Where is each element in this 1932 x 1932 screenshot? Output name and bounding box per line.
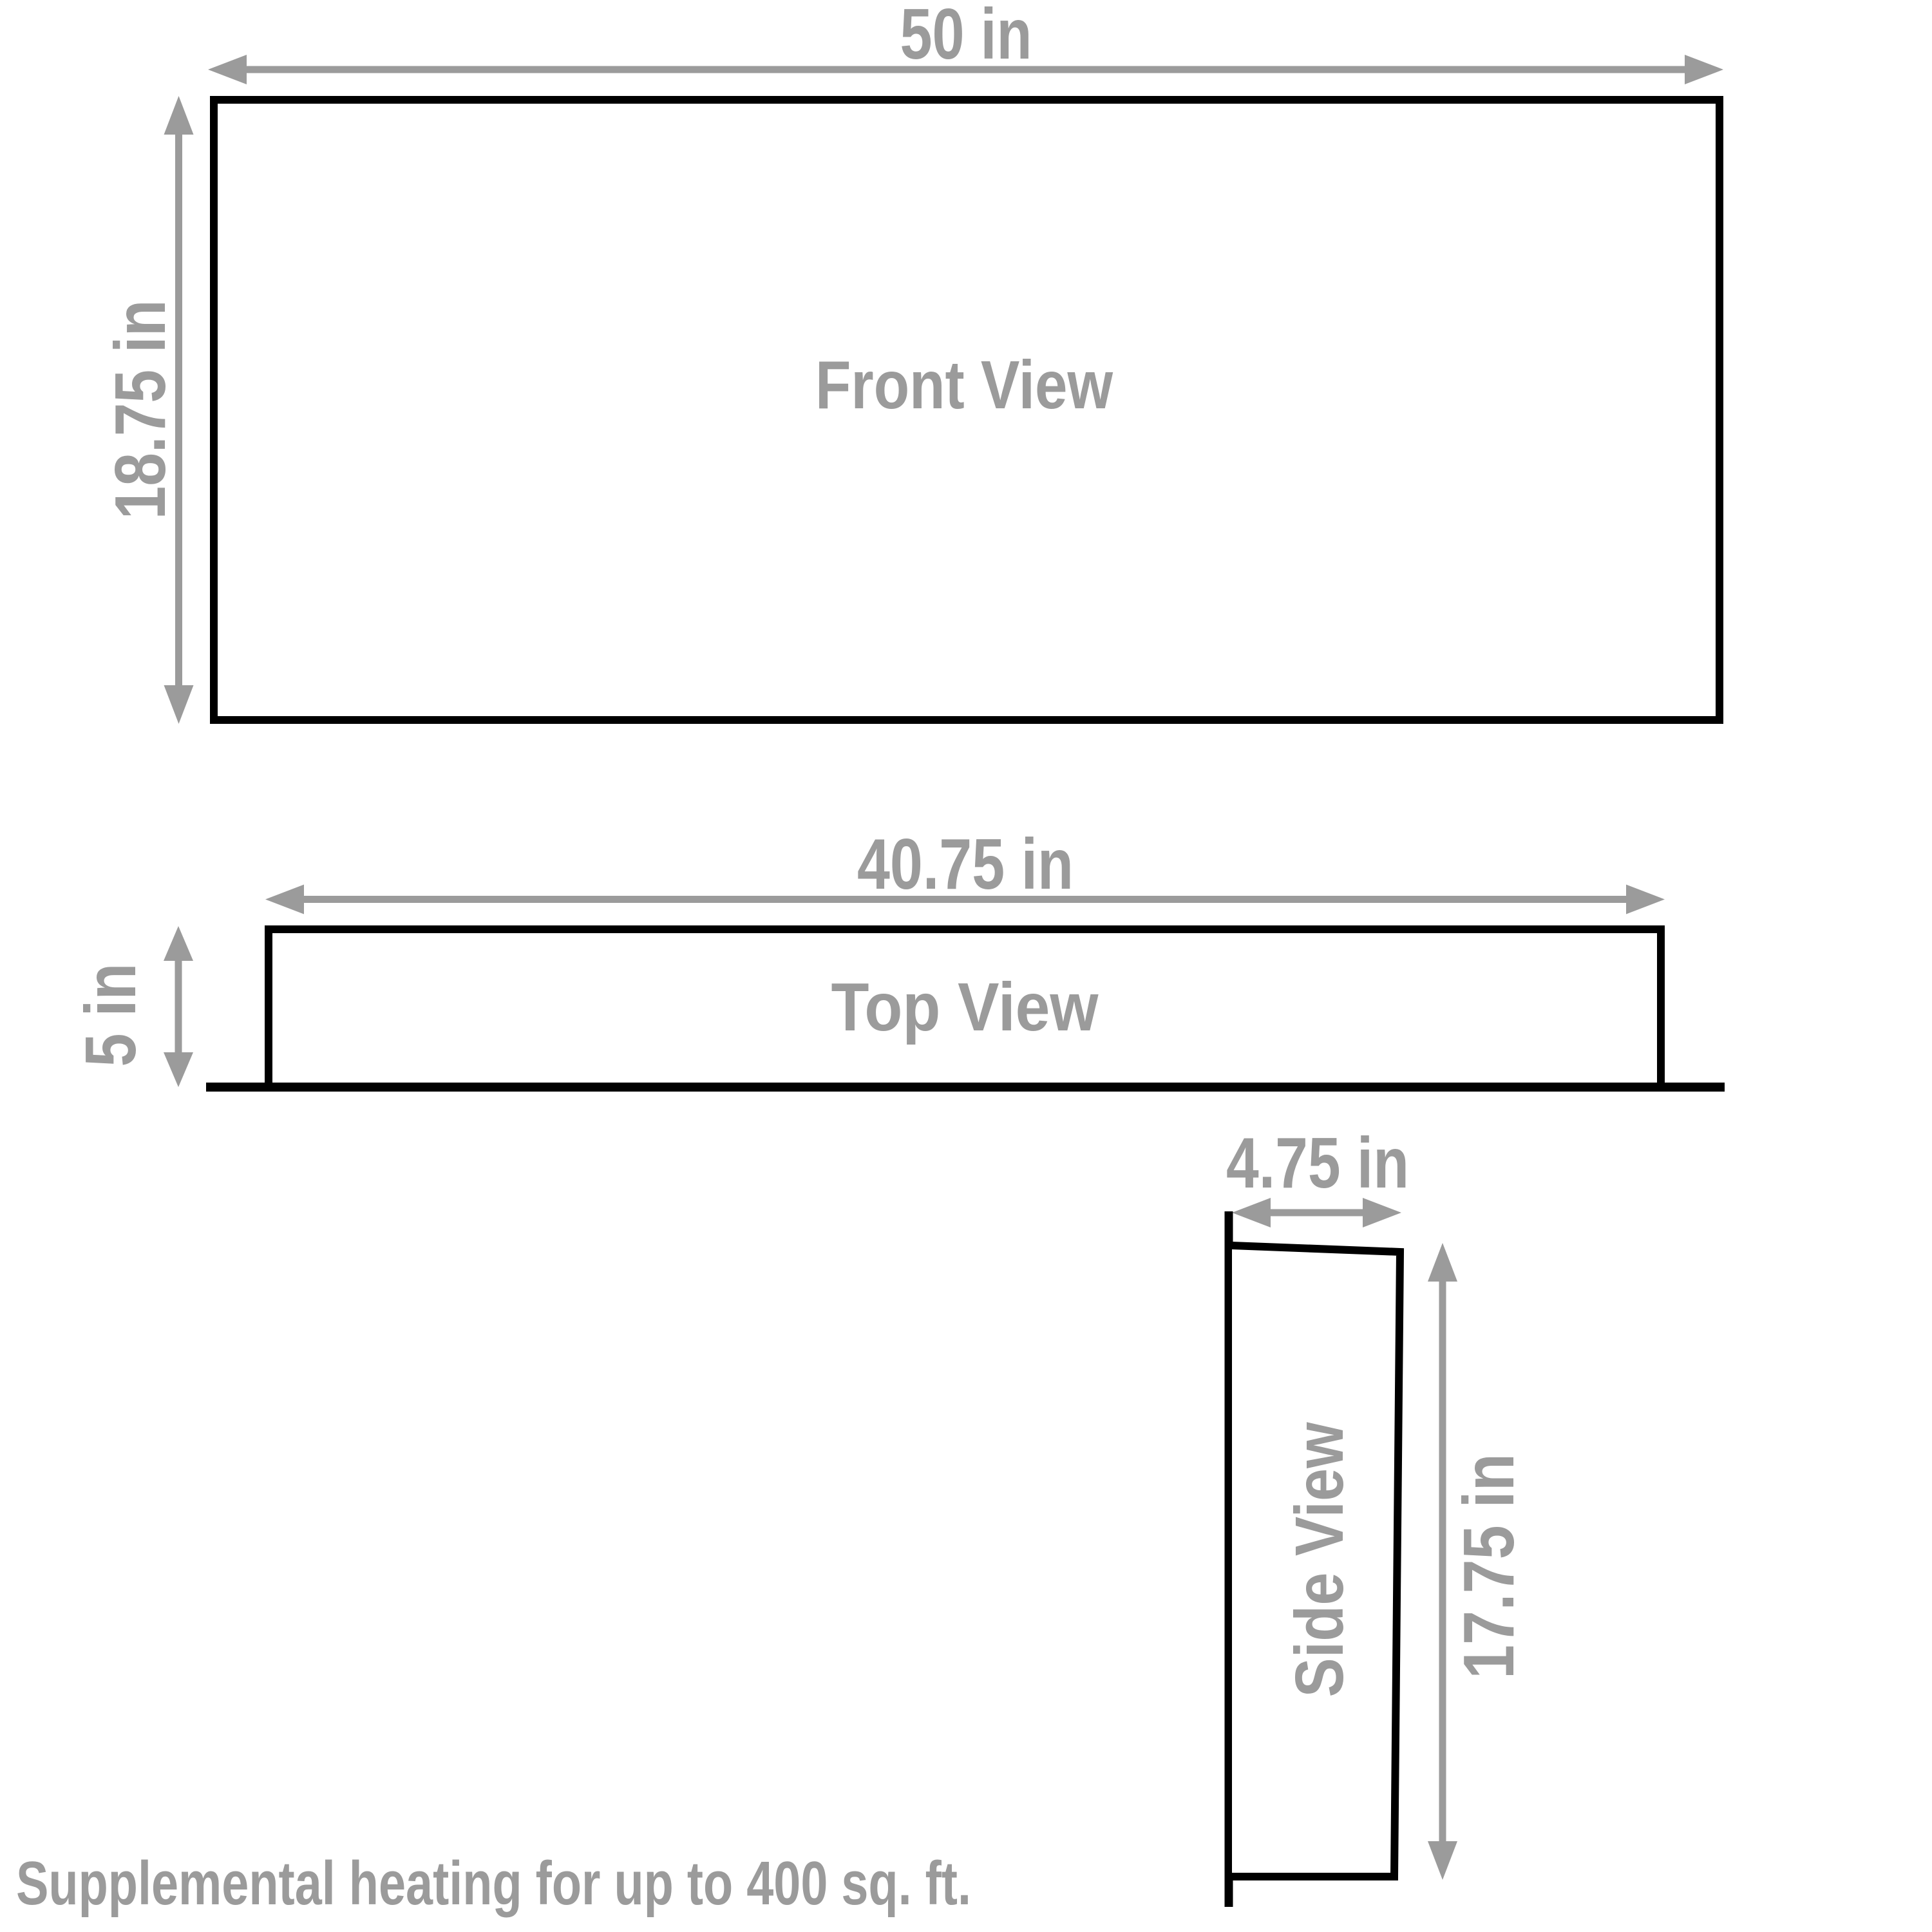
svg-text:40.75 in: 40.75 in [857,824,1074,904]
svg-text:Side View: Side View [1282,1422,1358,1697]
svg-text:4.75 in: 4.75 in [1226,1123,1409,1203]
svg-text:Top View: Top View [831,969,1099,1045]
svg-text:50 in: 50 in [900,0,1032,74]
svg-text:5 in: 5 in [71,963,151,1067]
svg-text:Front View: Front View [815,347,1113,423]
svg-text:Supplemental heating for up to: Supplemental heating for up to 400 sq. f… [16,1849,971,1918]
svg-text:18.75 in: 18.75 in [100,300,180,520]
svg-text:17.75 in: 17.75 in [1449,1454,1529,1679]
